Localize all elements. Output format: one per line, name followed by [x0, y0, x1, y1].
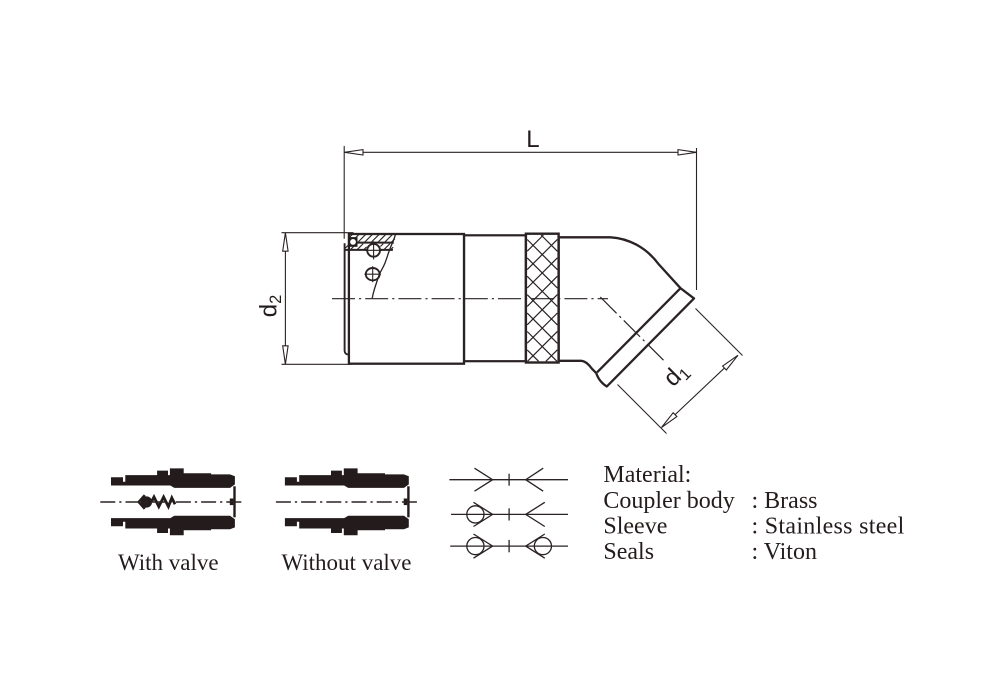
- svg-text:Coupler body: Coupler body: [603, 488, 734, 514]
- svg-text:: Brass: : Brass: [752, 488, 818, 514]
- svg-text:Without valve: Without valve: [281, 550, 411, 575]
- svg-text:Sleeve: Sleeve: [603, 513, 667, 539]
- svg-text:With valve: With valve: [118, 550, 219, 575]
- svg-text:Material:: Material:: [603, 462, 691, 488]
- svg-text:Seals: Seals: [603, 539, 654, 565]
- svg-text:L: L: [526, 126, 539, 153]
- svg-text:: Viton: : Viton: [752, 539, 817, 565]
- svg-text:: Stainless steel: : Stainless steel: [752, 513, 905, 539]
